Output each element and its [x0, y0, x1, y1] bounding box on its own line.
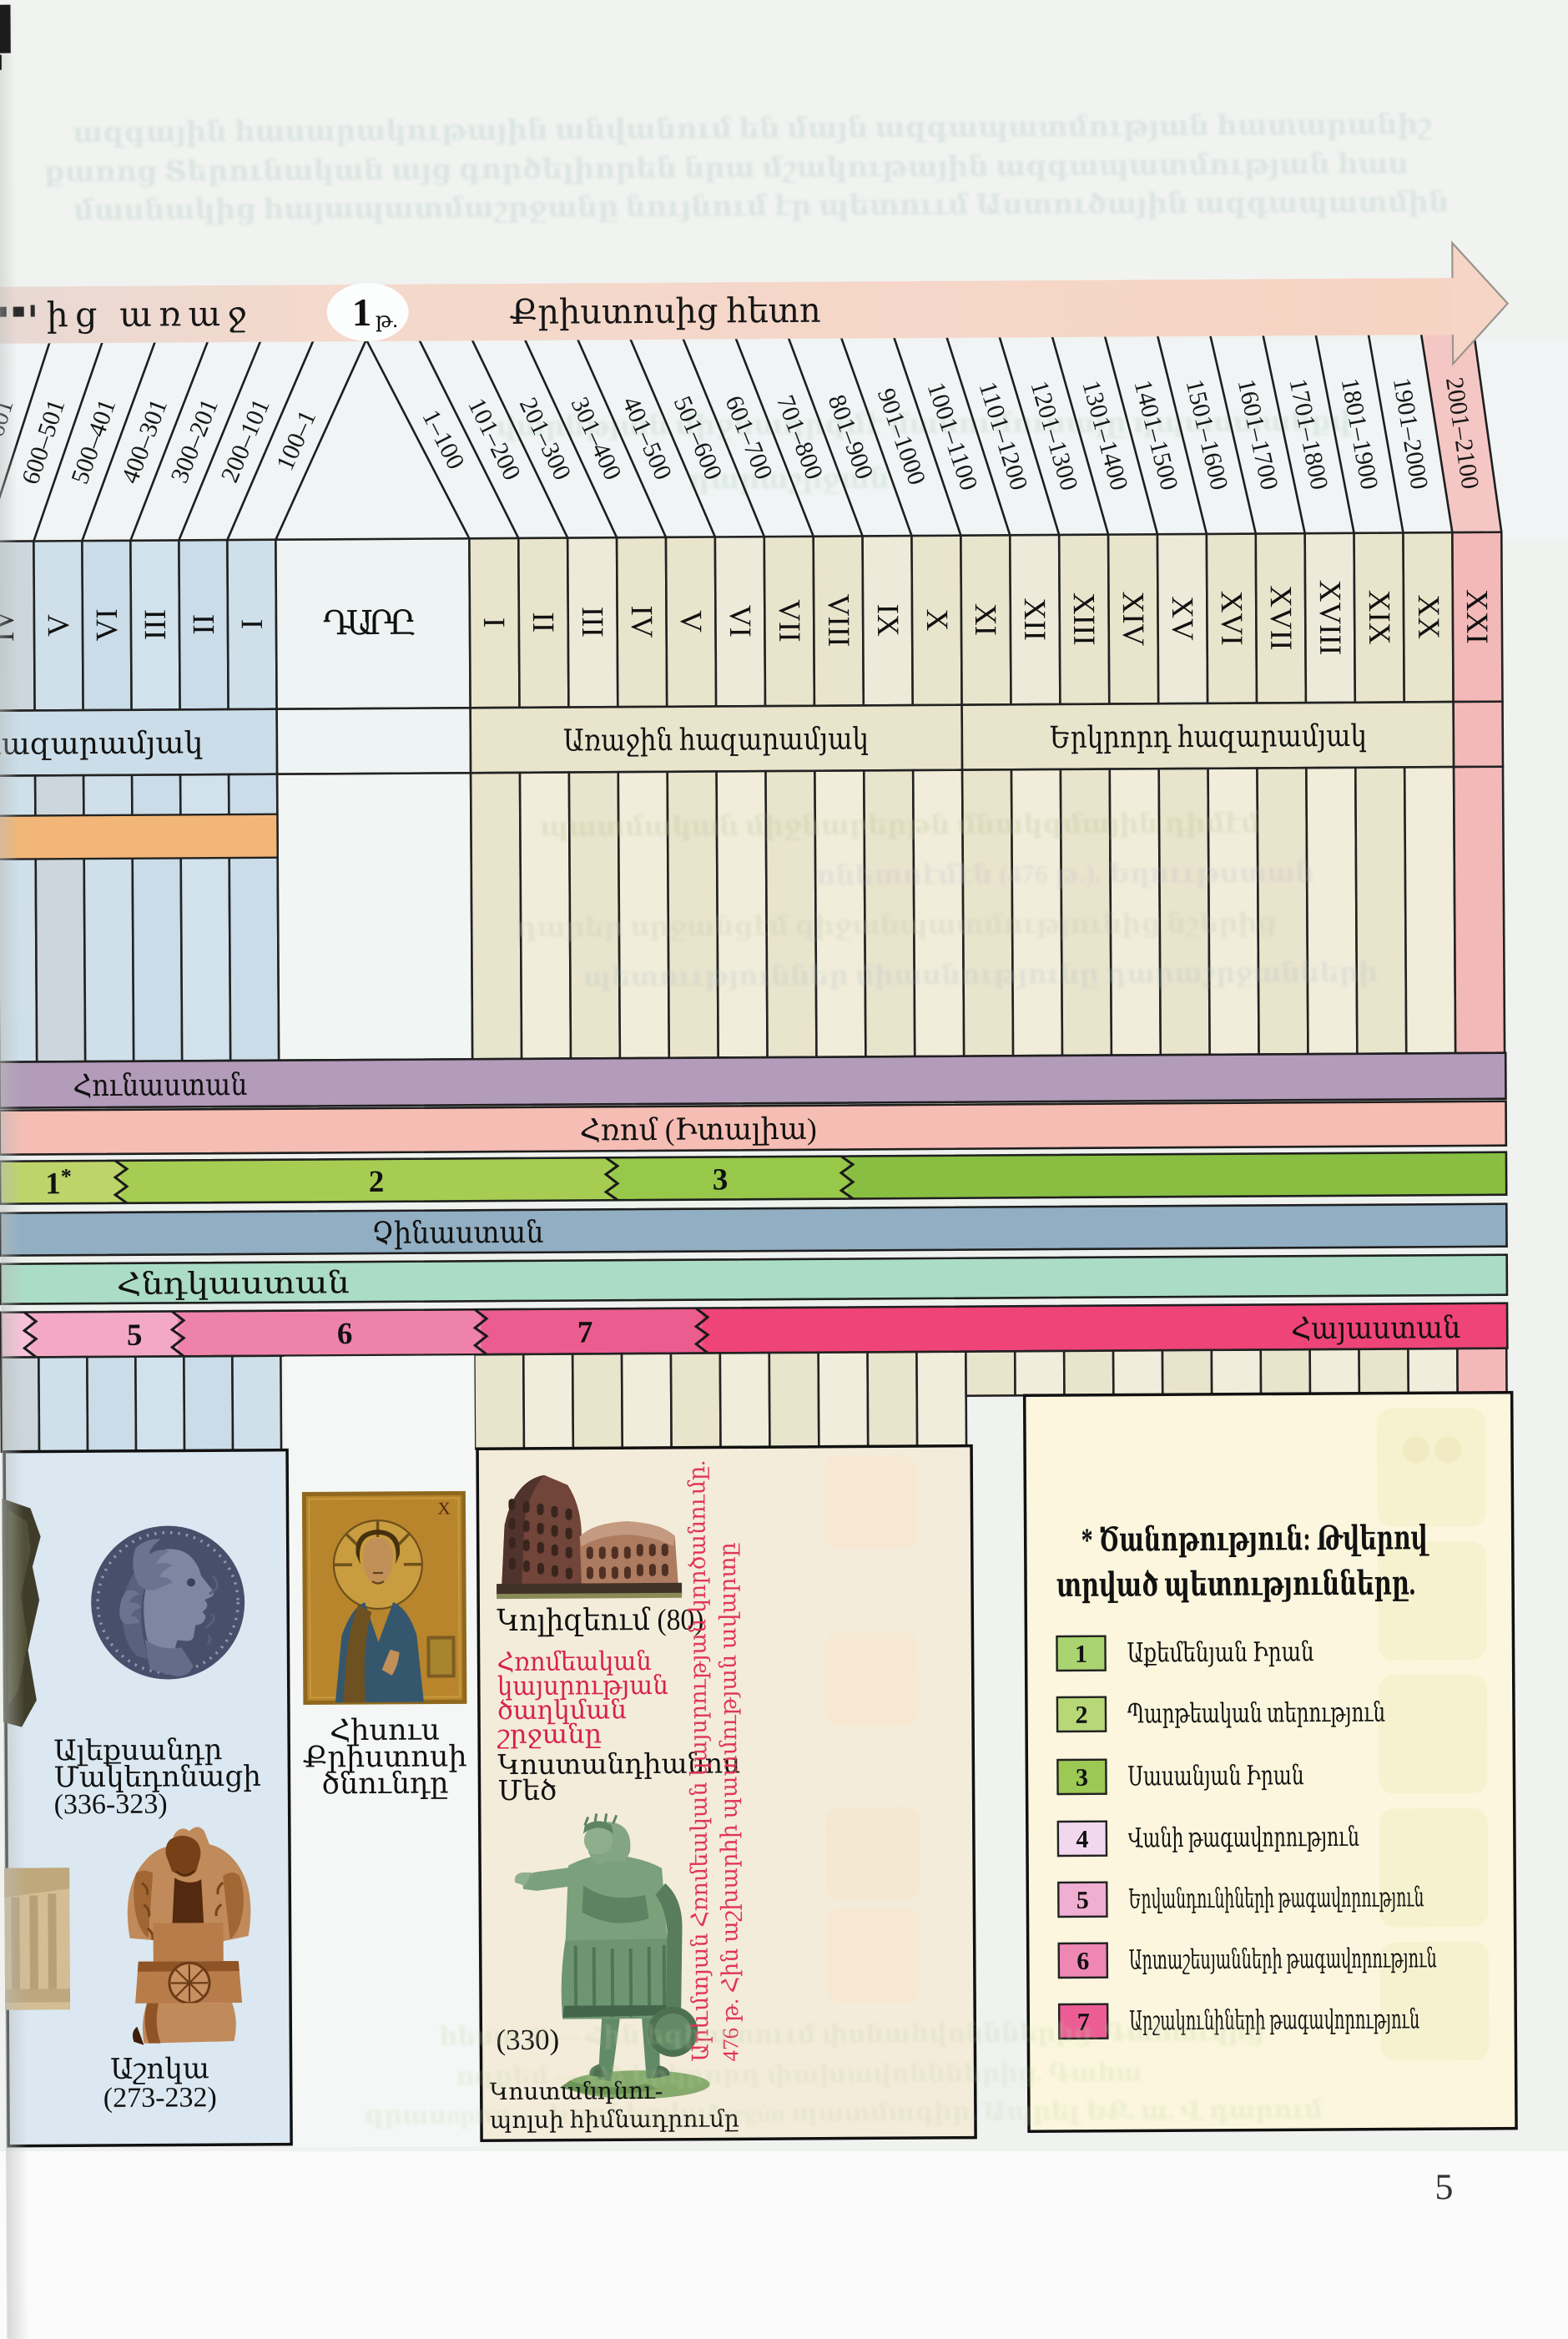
svg-text:ոնետոէմէն (476 թ.). Եղոււթստան: ոնետոէմէն (476 թ.). Եղոււթստան [816, 857, 1314, 890]
svg-text:II: II [187, 614, 221, 635]
svg-text:XII: XII [1017, 597, 1051, 641]
svg-text:VII: VII [772, 599, 806, 643]
svg-text:XIX: XIX [1362, 590, 1396, 645]
svg-text:V: V [673, 610, 708, 633]
svg-text:ծնունդը: ծնունդը [321, 1767, 448, 1800]
svg-text:Վանի թագավորություն: Վանի թագավորություն [1128, 1822, 1359, 1853]
svg-text:XVI: XVI [1214, 591, 1248, 646]
svg-text:I: I [476, 618, 511, 628]
svg-text:VIII: VIII [821, 594, 855, 648]
svg-text:Երկրորդ հազարամյակ: Երկրորդ հազարամյակ [1050, 719, 1367, 754]
svg-text:5: 5 [1434, 2166, 1453, 2207]
svg-text:XXI: XXI [1460, 589, 1494, 644]
svg-text:XVII: XVII [1263, 585, 1298, 650]
svg-text:(273-232): (273-232) [103, 2082, 217, 2114]
svg-text:XVIII: XVIII [1313, 580, 1348, 656]
svg-text:տրված պետությունները.: տրված պետությունները. [1056, 1564, 1415, 1604]
svg-text:6: 6 [337, 1317, 353, 1351]
svg-text:5: 5 [1076, 1887, 1089, 1914]
svg-text:Երվանդունիների թագավորություն: Երվանդունիների թագավորություն [1128, 1882, 1424, 1913]
svg-text:Մեծ: Մեծ [497, 1777, 557, 1807]
svg-text:XI: XI [968, 603, 1002, 636]
svg-text:Հնդկաստան: Հնդկաստան [117, 1266, 350, 1301]
svg-text:Արևմտյան Հռոմեական կայսրության: Արևմտյան Հռոմեական կայսրության կործանում… [684, 1460, 713, 2062]
svg-text:XX: XX [1411, 594, 1445, 639]
svg-text:թ.: թ. [376, 308, 398, 332]
svg-text:պատմական միջնաբերթն մնակզմային: պատմական միջնաբերթն մնակզմային դիմէմ [540, 808, 1260, 842]
svg-text:* Ծանոթություն: Թվերով: * Ծանոթություն: Թվերով [1081, 1519, 1429, 1559]
svg-text:շրջանը: շրջանը [497, 1719, 602, 1749]
svg-text:I: I [235, 619, 270, 630]
svg-text:հետո ill — Հին եգիպտոււմ փսնահ: հետո ill — Հին եգիպտոււմ փսնահվոնններից.… [439, 2019, 1264, 2051]
svg-text:XV: XV [1165, 596, 1199, 641]
svg-text:V: V [42, 614, 76, 637]
svg-text:7: 7 [577, 1315, 593, 1349]
svg-text:(336-323): (336-323) [54, 1789, 168, 1821]
svg-text:IV: IV [624, 605, 658, 638]
svg-text:3: 3 [1076, 1764, 1088, 1792]
svg-text:գրասnpոս — Կոգնեցվածsegún պատմ: գրասnpոս — Կոգնեցվածsegún պատմագիր. Ապրե… [365, 2096, 1323, 2130]
svg-text:4: 4 [1076, 1826, 1088, 1853]
svg-text:դարեր սրջանցէմ զիջանպատմությու: դարեր սրջանցէմ զիջանպատմությունից նշերից [516, 907, 1277, 942]
svg-text:Առաջին հազարամյակ: Առաջին հազարամյակ [563, 722, 869, 757]
svg-text:II: II [526, 612, 560, 633]
svg-text:Հունաստան: Հունաստան [73, 1068, 247, 1102]
svg-text:Քրիստոսից հետո: Քրիստոսից հետո [510, 291, 821, 332]
svg-text:IX: IX [870, 604, 905, 638]
svg-text:հազարամյակ: հազարամյակ [0, 726, 203, 761]
svg-text:ոգքեմ — Օձ երկրորդ փախավոնններ: ոգքեմ — Օձ երկրորդ փախավոնններից. Գահա [456, 2059, 1142, 2090]
svg-text:X: X [920, 608, 954, 631]
svg-text:պետոււթյուններ միասնությունը դ: պետոււթյուններ միասնությունը դարաշրջաննե… [582, 957, 1378, 992]
svg-text:Արտաշեսյանների թագավորություն: Արտաշեսյանների թագավորություն [1129, 1943, 1437, 1974]
svg-text:ից առաջ: ից առաջ [47, 295, 247, 335]
svg-text:2: 2 [1075, 1701, 1087, 1729]
svg-text:Սասանյան Իրան: Սասանյան Իրան [1127, 1760, 1303, 1791]
svg-text:Աշոկա: Աշոկա [110, 2054, 209, 2085]
svg-text:1: 1 [352, 291, 372, 335]
svg-text:XIV: XIV [1116, 591, 1150, 646]
svg-text:1: 1 [1075, 1641, 1087, 1668]
svg-text:Պարթեական տերություն: Պարթեական տերություն [1127, 1697, 1385, 1729]
svg-text:5: 5 [127, 1318, 143, 1353]
svg-text:476 թ. Հին աշխարհի պատմության: 476 թ. Հին աշխարհի պատմության ավարտը [715, 1542, 744, 2061]
svg-text:Հռոմ (Իտալիա): Հռոմ (Իտալիա) [580, 1112, 817, 1147]
svg-text:6: 6 [1076, 1948, 1089, 1975]
svg-text:ԴԱՐԸ: ԴԱՐԸ [323, 604, 416, 643]
svg-text:3: 3 [713, 1162, 729, 1197]
svg-text:III: III [139, 609, 173, 640]
svg-text:2: 2 [369, 1165, 385, 1199]
svg-text:Կոլիզեում (80): Կոլիզեում (80) [497, 1603, 703, 1638]
svg-text:VI: VI [723, 605, 757, 638]
svg-text:III: III [575, 607, 609, 638]
svg-text:Հայաստան: Հայաստան [1291, 1311, 1460, 1345]
svg-text:X: X [437, 1498, 450, 1518]
svg-text:Չինաստան: Չինաստան [371, 1216, 543, 1250]
svg-text:XIII: XIII [1066, 592, 1101, 646]
svg-text:VI: VI [90, 608, 124, 641]
svg-text:Աքեմենյան Իրան: Աքեմենյան Իրան [1127, 1636, 1313, 1667]
